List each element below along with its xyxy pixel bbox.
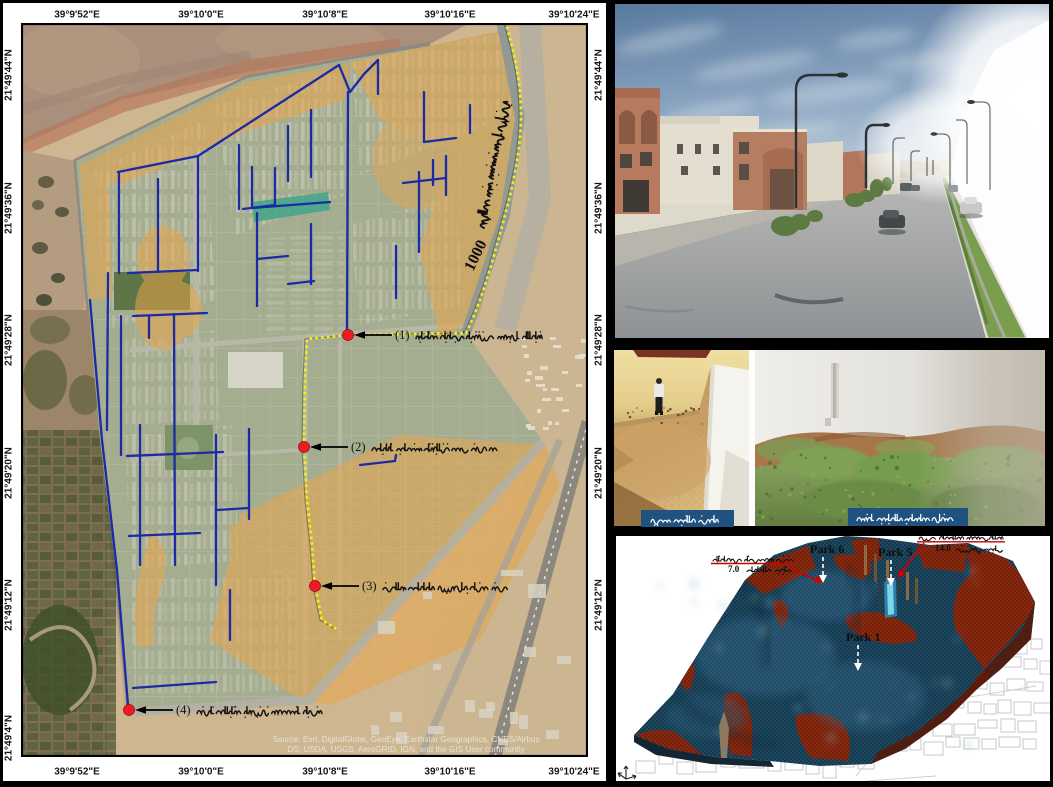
svg-text:Source: Esri, DigitalGlobe, Ge: Source: Esri, DigitalGlobe, GeoEye, Eart… bbox=[272, 735, 539, 744]
svg-text:(4): (4) bbox=[176, 703, 191, 717]
svg-text:(1): (1) bbox=[395, 328, 410, 342]
svg-text:(3): (3) bbox=[362, 579, 377, 593]
svg-text:Park 1: Park 1 bbox=[846, 630, 880, 644]
svg-text:Park 5: Park 5 bbox=[878, 545, 912, 559]
svg-text:Park 6: Park 6 bbox=[810, 542, 844, 556]
svg-text:(2): (2) bbox=[351, 440, 366, 454]
svg-text:7.0: 7.0 bbox=[728, 564, 740, 574]
svg-text:14.0: 14.0 bbox=[935, 543, 951, 553]
svg-text:DS, USDA, USGS, AeroGRID, IGN,: DS, USDA, USGS, AeroGRID, IGN, and the G… bbox=[287, 745, 525, 754]
